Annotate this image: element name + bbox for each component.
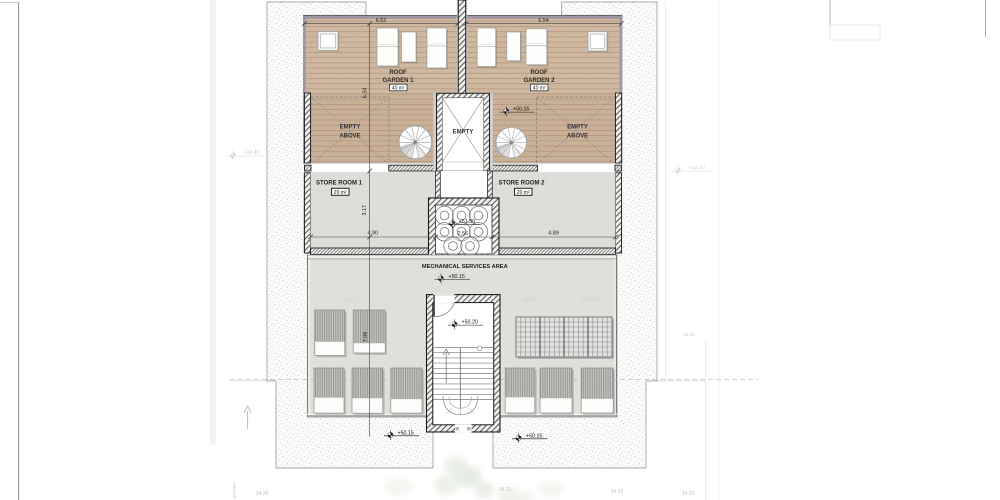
svg-text:6.52: 6.52 <box>376 18 387 24</box>
svg-text:ROOF: ROOF <box>389 70 407 76</box>
svg-text:+51.30: +51.30 <box>459 219 475 225</box>
svg-text:ABOVE: ABOVE <box>567 134 588 140</box>
svg-text:6.34: 6.34 <box>362 88 368 99</box>
svg-text:EMPTY: EMPTY <box>343 298 361 304</box>
svg-text:40 m²: 40 m² <box>392 85 405 91</box>
svg-text:40 m²: 40 m² <box>533 85 546 91</box>
svg-text:+50.15: +50.15 <box>449 274 465 280</box>
svg-text:34.05: 34.05 <box>683 332 695 337</box>
svg-text:GARDEN 1: GARDEN 1 <box>382 78 414 84</box>
svg-text:+50.15: +50.15 <box>398 430 414 436</box>
svg-text:20 m²: 20 m² <box>334 190 347 196</box>
svg-text:7.06: 7.06 <box>363 332 369 343</box>
svg-text:STORE ROOM 2: STORE ROOM 2 <box>499 180 546 186</box>
svg-text:3.17: 3.17 <box>362 205 368 216</box>
svg-text:EMPTY: EMPTY <box>340 125 361 131</box>
svg-text:4.89: 4.89 <box>548 231 559 237</box>
svg-text:34.20: 34.20 <box>611 489 624 495</box>
svg-text:STORE ROOM 1: STORE ROOM 1 <box>316 180 363 186</box>
svg-text:4.90: 4.90 <box>368 231 379 237</box>
svg-text:+34.40: +34.40 <box>689 165 705 171</box>
svg-text:ABOVE: ABOVE <box>339 134 360 140</box>
svg-text:6.54: 6.54 <box>538 18 549 24</box>
svg-text:ROOF: ROOF <box>530 70 548 76</box>
svg-text:20 m²: 20 m² <box>517 190 530 196</box>
svg-text:EMPTY: EMPTY <box>522 298 540 304</box>
svg-text:34.20: 34.20 <box>682 491 695 497</box>
svg-text:2.56: 2.56 <box>458 231 469 237</box>
svg-text:EMPTY: EMPTY <box>453 130 474 136</box>
svg-text:+50.15: +50.15 <box>526 433 542 439</box>
svg-text:EMPTY: EMPTY <box>582 298 600 304</box>
svg-text:ENTRY: ENTRY <box>232 481 238 498</box>
svg-text:+50.20: +50.20 <box>462 320 478 326</box>
svg-text:34.25: 34.25 <box>499 487 512 493</box>
svg-text:EMPTY: EMPTY <box>567 125 588 131</box>
svg-text:GARDEN 2: GARDEN 2 <box>523 78 555 84</box>
svg-text:34.28: 34.28 <box>256 491 269 497</box>
svg-text:+34.40: +34.40 <box>244 150 260 156</box>
svg-text:MECHANICAL SERVICES AREA: MECHANICAL SERVICES AREA <box>422 264 508 270</box>
svg-text:+50.15: +50.15 <box>513 107 529 113</box>
